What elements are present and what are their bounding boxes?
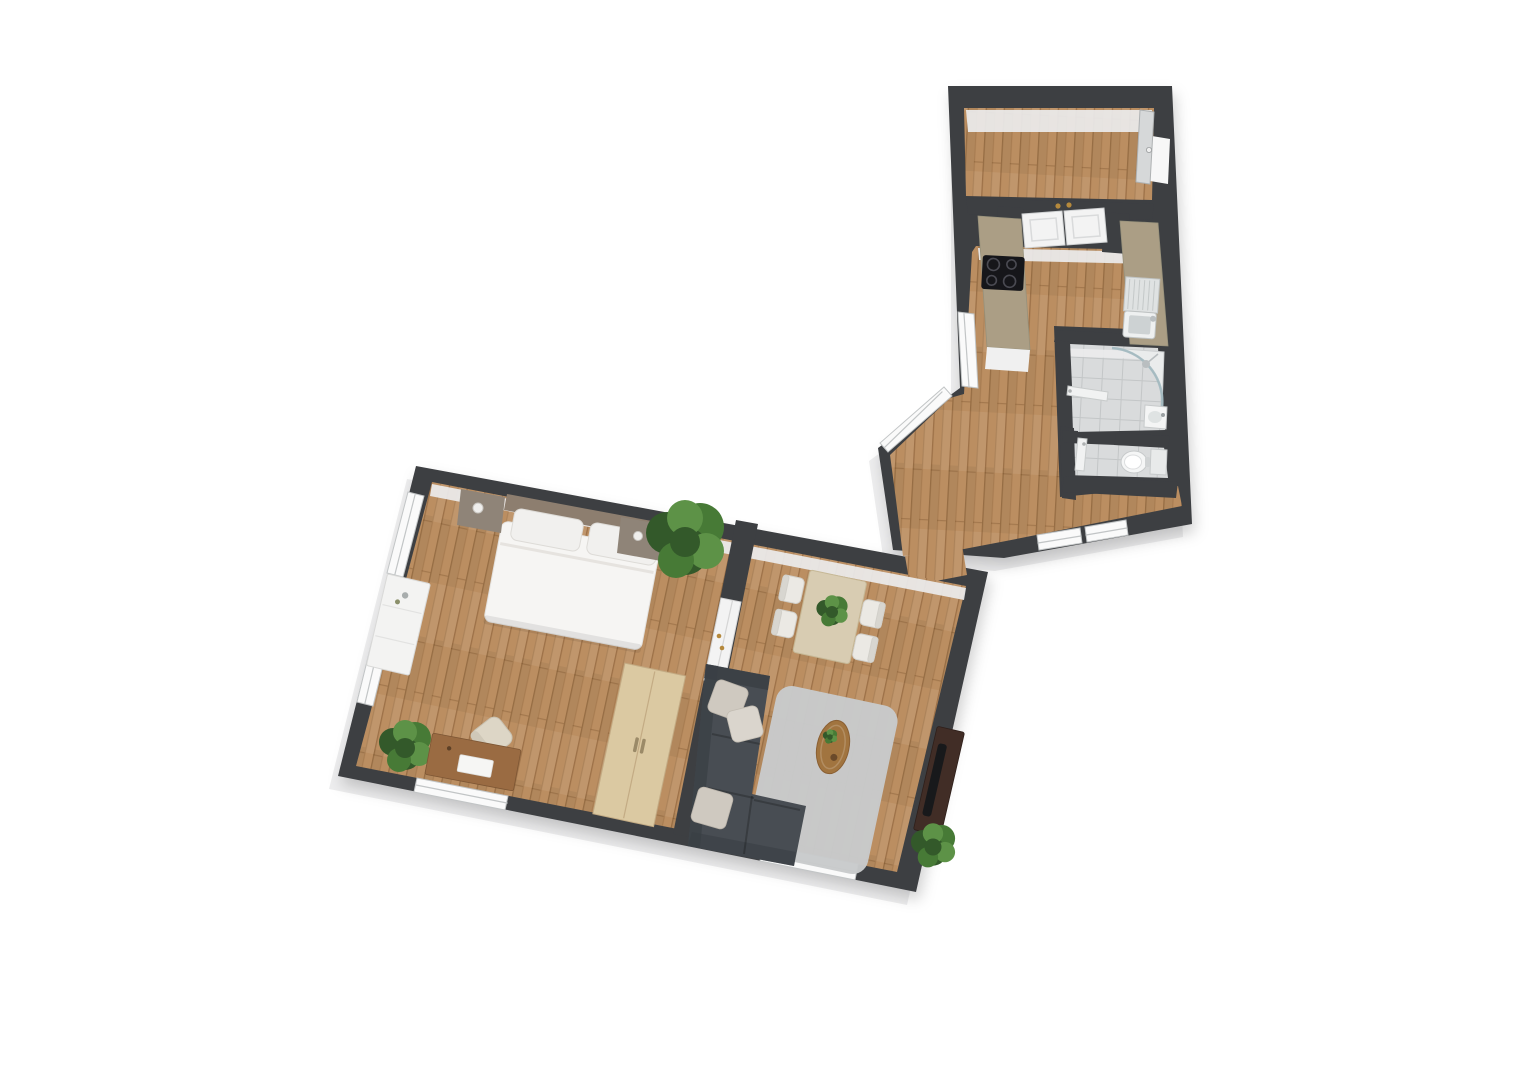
floor-plan-page (0, 0, 1527, 1080)
kitchen-window (958, 312, 978, 388)
cooktop (981, 255, 1025, 291)
kitchen-cabinet-face (985, 347, 1030, 372)
kitchen-sink (1122, 277, 1160, 339)
floor-plan-canvas (0, 0, 1527, 1080)
washbasin (1144, 405, 1167, 429)
